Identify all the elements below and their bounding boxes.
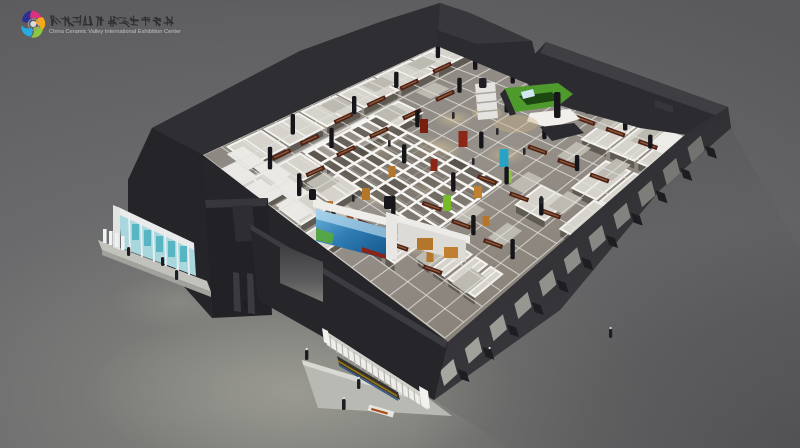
svg-text:China Ceramic Valley Internati: China Ceramic Valley International Exhib… — [49, 29, 181, 35]
